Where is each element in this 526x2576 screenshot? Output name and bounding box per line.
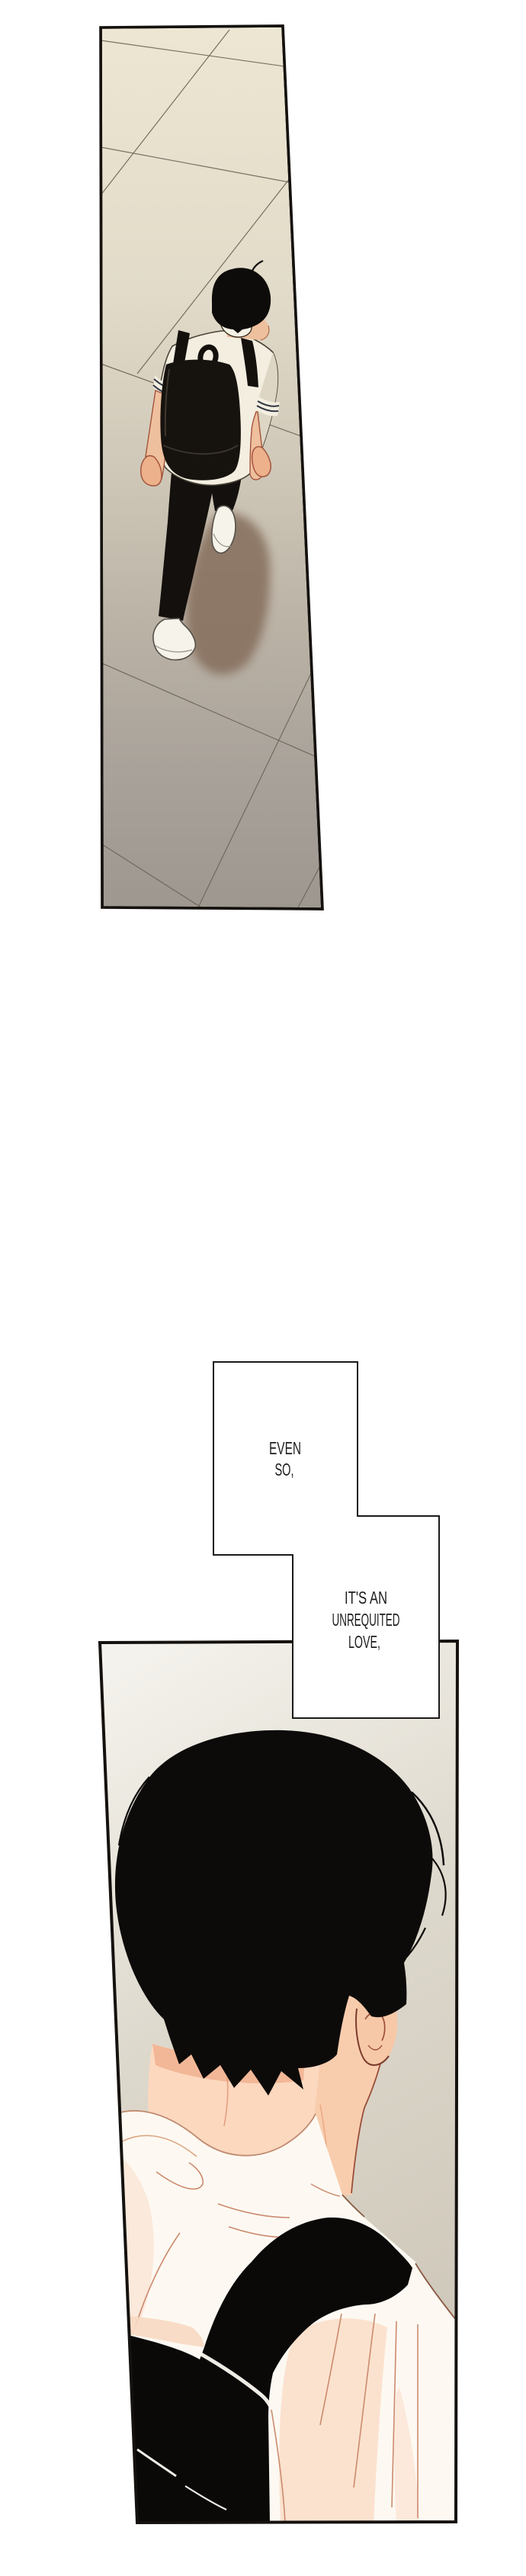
svg-text:LOVE,: LOVE, <box>348 1632 380 1652</box>
svg-text:SO,: SO, <box>275 1460 294 1479</box>
svg-text:UNREQUITED: UNREQUITED <box>332 1610 400 1630</box>
svg-text:EVEN: EVEN <box>269 1438 301 1458</box>
svg-text:IT'S AN: IT'S AN <box>345 1588 387 1608</box>
